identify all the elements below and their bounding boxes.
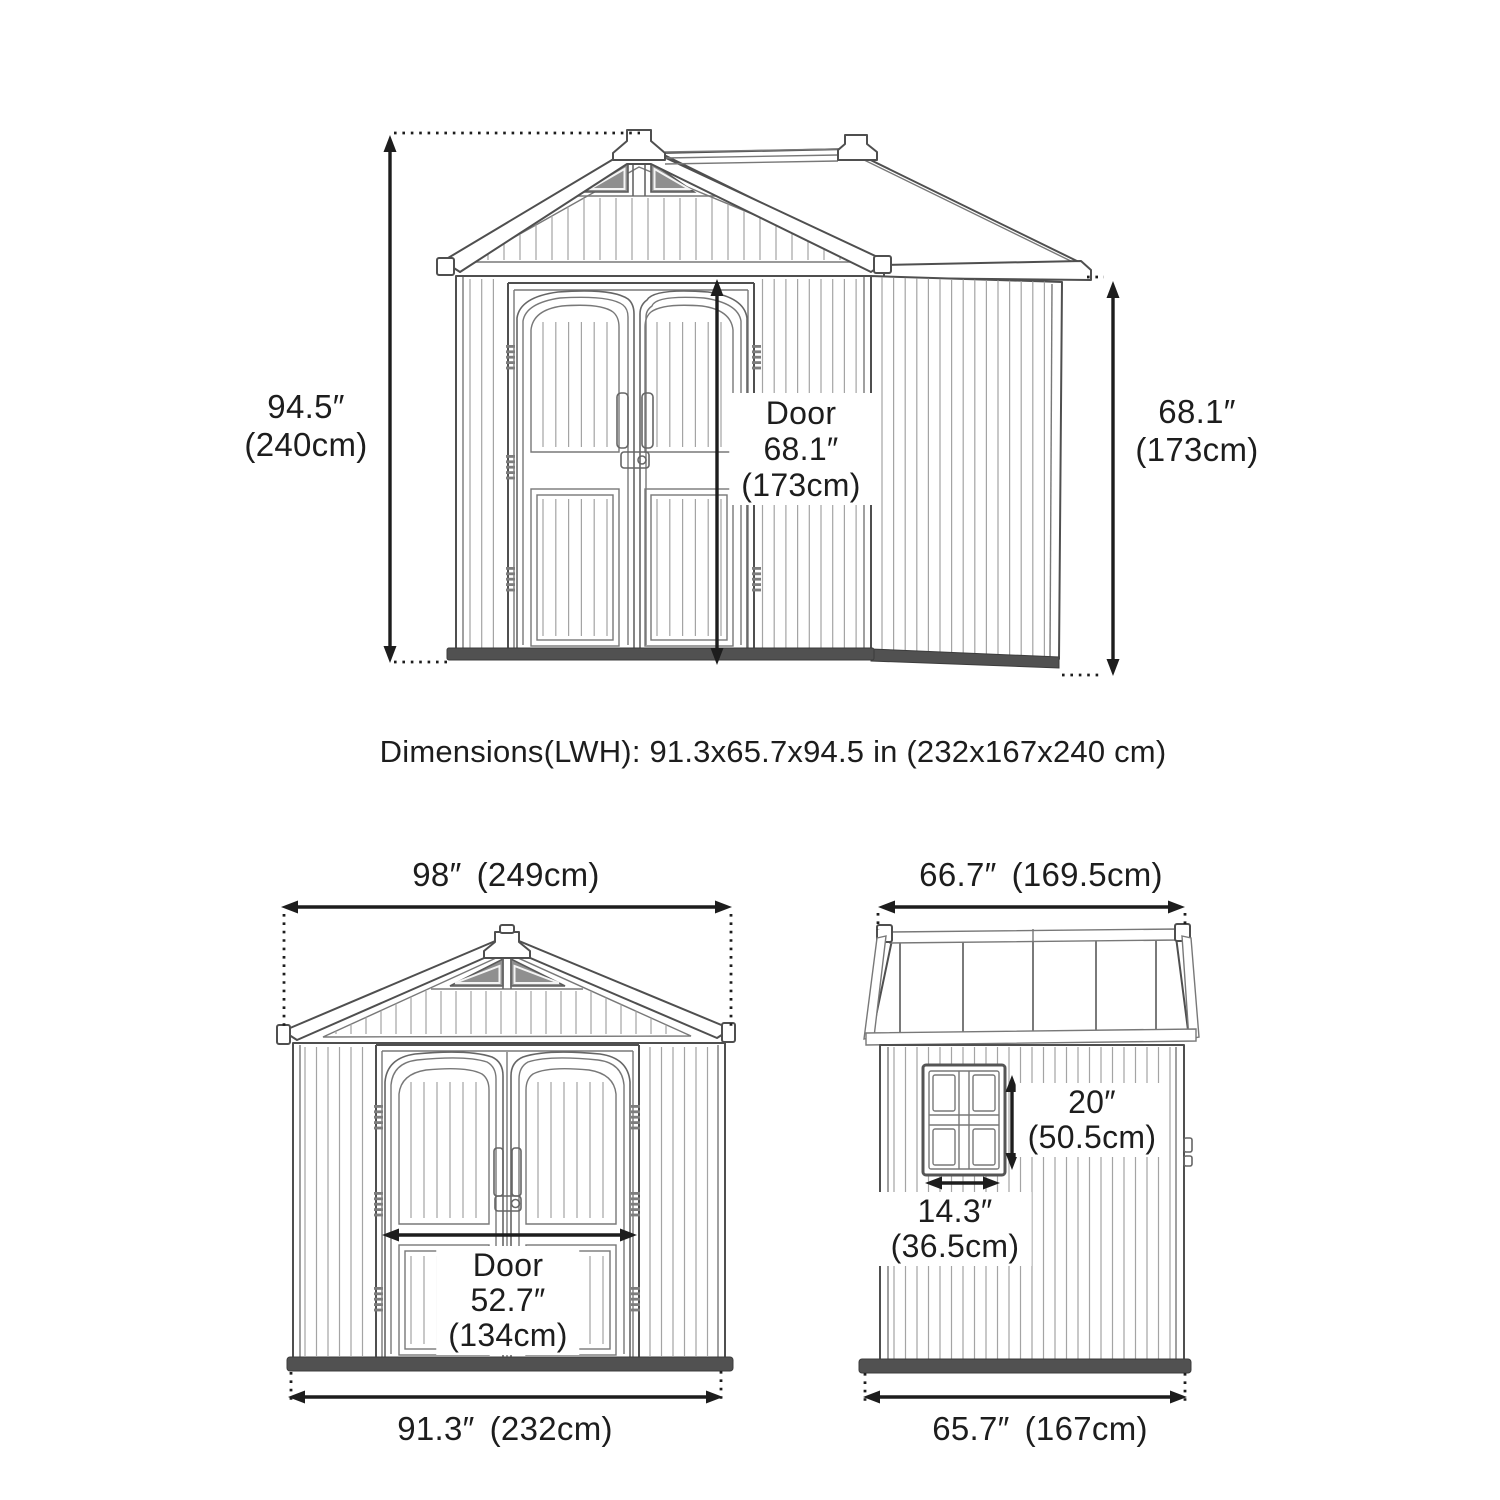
front-door-width-label: Door 52.7″ (134cm)	[436, 1246, 579, 1355]
ridge-cap	[484, 932, 530, 958]
side-roof-depth-label: 66.7″(169.5cm)	[919, 856, 1163, 894]
overall-height-label: 94.5″ (240cm)	[244, 388, 367, 464]
window-height-label: 20″ (50.5cm)	[1016, 1083, 1169, 1157]
side-window	[923, 1065, 1005, 1175]
front-skid	[447, 648, 874, 660]
ridge-cap-front	[613, 130, 665, 160]
side-base-depth-label: 65.7″(167cm)	[932, 1410, 1148, 1448]
base-skid	[859, 1359, 1191, 1373]
side-latch	[1184, 1138, 1192, 1152]
roof-shingles	[872, 937, 1188, 1035]
dimensions-summary: Dimensions(LWH): 91.3x65.7x94.5 in (232x…	[380, 734, 1167, 770]
ridge-trim	[890, 929, 1178, 943]
base-skid	[287, 1357, 733, 1371]
window-width-label: 14.3″ (36.5cm)	[879, 1192, 1032, 1266]
shed-dimension-diagram: 94.5″ (240cm) Door 68.1″ (173cm) 68.1″ (…	[0, 0, 1500, 1500]
wall-height-label: 68.1″ (173cm)	[1135, 393, 1258, 469]
side-view-illustration	[859, 913, 1199, 1404]
front-roof-width-label: 98″(249cm)	[412, 856, 599, 894]
front-base-width-label: 91.3″(232cm)	[397, 1410, 613, 1448]
eave-band	[866, 1029, 1196, 1045]
ridge-cap-rear	[838, 135, 877, 160]
door-height-label: Door 68.1″ (173cm)	[729, 393, 872, 505]
fascia-rear	[1182, 936, 1199, 1039]
